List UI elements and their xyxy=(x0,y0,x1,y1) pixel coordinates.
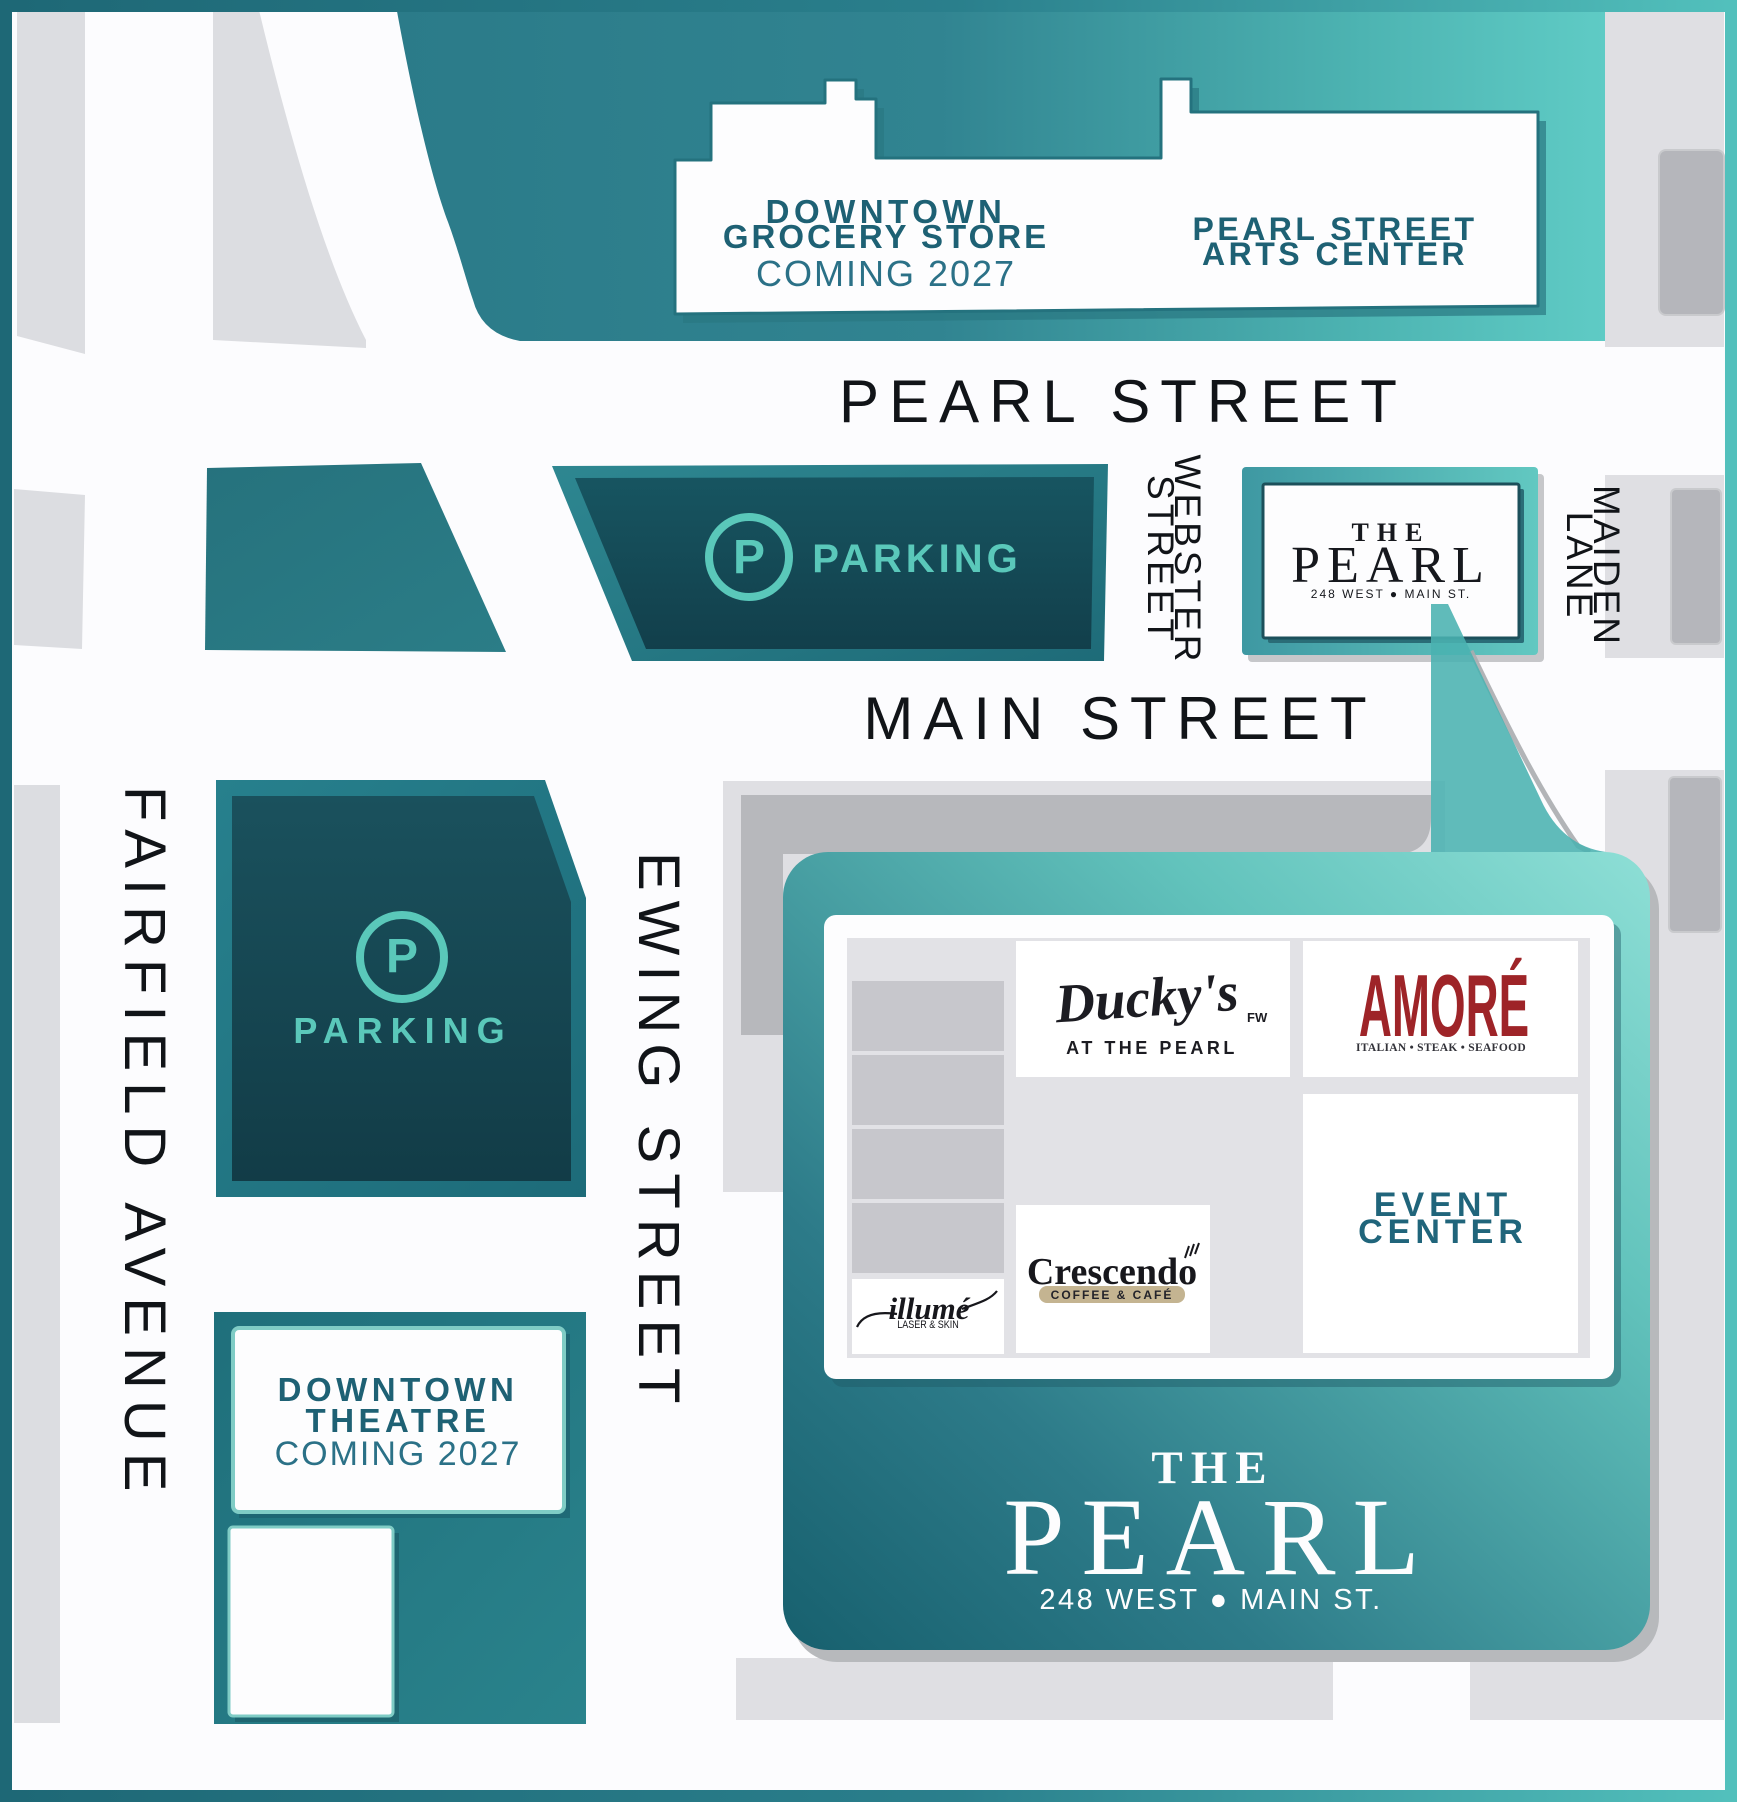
svg-text:COMING 2027: COMING 2027 xyxy=(756,253,1016,294)
svg-text:STREET: STREET xyxy=(1140,475,1181,645)
svg-text:LASER & SKIN: LASER & SKIN xyxy=(897,1319,959,1331)
svg-text:PEARL: PEARL xyxy=(1291,537,1491,594)
svg-text:Ducky's: Ducky's xyxy=(1052,961,1240,1035)
svg-text:PARKING: PARKING xyxy=(293,1010,512,1051)
svg-text:CENTER: CENTER xyxy=(1358,1213,1528,1251)
svg-text:ITALIAN • STEAK • SEAFOOD: ITALIAN • STEAK • SEAFOOD xyxy=(1356,1042,1526,1054)
svg-text:248 WEST ● MAIN ST.: 248 WEST ● MAIN ST. xyxy=(1311,587,1471,601)
svg-text:PEARL: PEARL xyxy=(1003,1476,1436,1598)
svg-text:PEARL STREET: PEARL STREET xyxy=(839,368,1407,435)
svg-text:COFFEE & CAFÉ: COFFEE & CAFÉ xyxy=(1051,1287,1174,1302)
svg-text:ARTS CENTER: ARTS CENTER xyxy=(1202,236,1468,272)
svg-text:AMORÉ: AMORÉ xyxy=(1359,957,1529,1055)
svg-text:AT THE PEARL: AT THE PEARL xyxy=(1066,1038,1238,1058)
svg-text:FAIRFIELD AVENUE: FAIRFIELD AVENUE xyxy=(112,786,177,1502)
svg-text:248 WEST ● MAIN ST.: 248 WEST ● MAIN ST. xyxy=(1039,1584,1382,1616)
svg-text:MAIN STREET: MAIN STREET xyxy=(863,685,1376,752)
svg-text:COMING 2027: COMING 2027 xyxy=(275,1435,522,1473)
svg-text:P: P xyxy=(386,930,418,983)
svg-text:FW: FW xyxy=(1247,1010,1268,1025)
svg-text:EWING STREET: EWING STREET xyxy=(626,852,691,1413)
svg-text:P: P xyxy=(733,531,765,584)
svg-text:LANE: LANE xyxy=(1559,512,1600,621)
svg-text:THEATRE: THEATRE xyxy=(306,1402,491,1439)
svg-text:GROCERY STORE: GROCERY STORE xyxy=(723,218,1049,255)
svg-text:PARKING: PARKING xyxy=(812,537,1021,581)
